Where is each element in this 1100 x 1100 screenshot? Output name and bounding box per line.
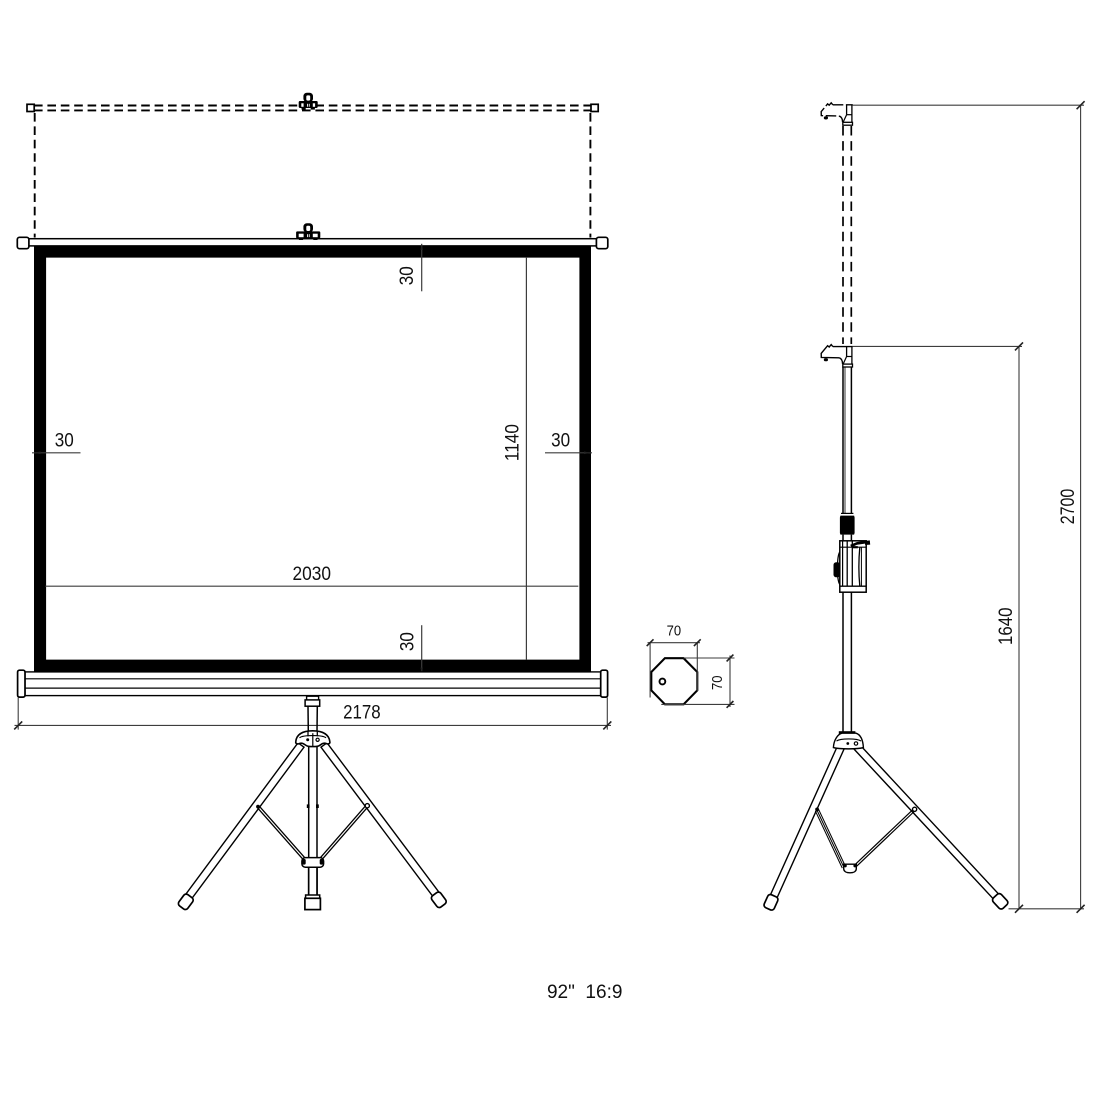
svg-text:92" 16:9: 92" 16:9 xyxy=(547,981,623,1003)
svg-text:70: 70 xyxy=(710,676,726,691)
svg-text:30: 30 xyxy=(397,632,419,651)
svg-text:2700: 2700 xyxy=(1057,489,1079,525)
svg-text:1640: 1640 xyxy=(995,607,1017,645)
svg-text:70: 70 xyxy=(667,624,682,640)
svg-text:30: 30 xyxy=(396,266,418,285)
svg-text:30: 30 xyxy=(55,429,74,451)
svg-text:2030: 2030 xyxy=(293,563,332,585)
svg-text:30: 30 xyxy=(551,429,570,451)
svg-text:1140: 1140 xyxy=(501,424,523,461)
svg-text:2178: 2178 xyxy=(343,702,381,724)
